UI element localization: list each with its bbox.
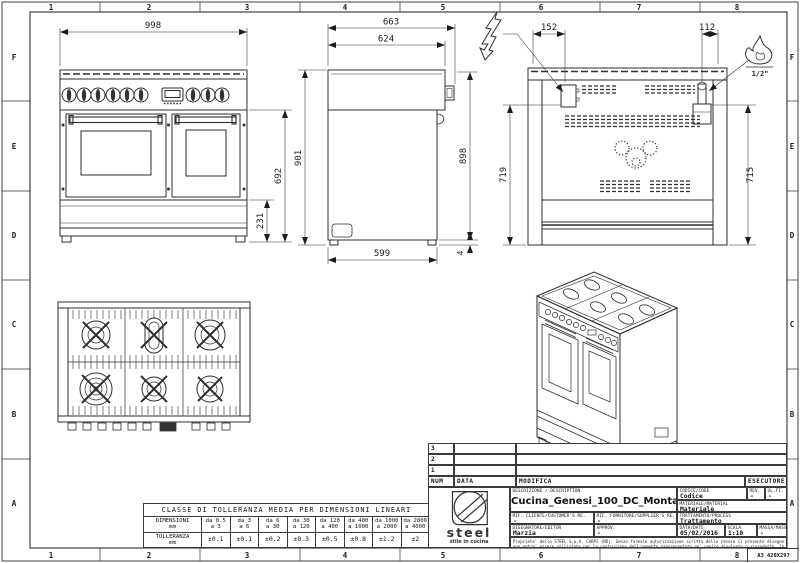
gas-size-label: 1/2"	[752, 70, 769, 78]
col-label: 8	[735, 551, 740, 560]
drawing-sheet: 1 2 3 4 5 6 7 8 1 2 3 4 5 6 7 8 F E D C …	[0, 0, 800, 563]
col-label: 1	[49, 551, 54, 560]
rev-cell: REV. -	[747, 487, 765, 500]
front-view	[60, 28, 292, 242]
dim-side-depth-total: 663	[383, 18, 399, 28]
title-block: 3 2 1 NUM DATA MODIFICA ESECUTORE steel …	[428, 443, 787, 548]
col-label: 1	[49, 3, 54, 12]
tolerance-table: CLASSE DI TOLLERANZA MEDIA PER DIMENSION…	[143, 503, 430, 548]
tolerance-label: TOLLERANZAmm	[144, 533, 202, 548]
dim-rear-left-height: 719	[499, 167, 509, 183]
tolerance-table-title: CLASSE DI TOLLERANZA MEDIA PER DIMENSION…	[144, 504, 429, 517]
row-label: D	[12, 231, 17, 240]
dim-front-body-height: 692	[274, 168, 284, 184]
dim-front-plinth-height: 231	[256, 213, 266, 229]
row-label: F	[12, 53, 17, 62]
dimension-range: da 30a 120	[288, 517, 317, 532]
header-esecutore: ESECUTORE	[745, 476, 787, 487]
revision-desc-cell	[516, 465, 787, 476]
steel-logo-mark	[446, 489, 492, 529]
dimension-range: da 120a 400	[316, 517, 345, 532]
dim-rear-gas-offset: 112	[699, 23, 715, 33]
header-data: DATA	[454, 476, 516, 487]
supplier-ref-cell: RIF. FORNITORE/SUPPLIER'S RE. -	[594, 512, 677, 524]
row-label: F	[790, 53, 795, 62]
dimension-range: da 0.5a 3	[202, 517, 231, 532]
header-modifica: MODIFICA	[516, 476, 745, 487]
col-label: 7	[637, 3, 642, 12]
code-cell: CODICE/CODE Codice	[677, 487, 747, 500]
legal-cell: Proprieta' dello STEEL S.p.A. CARPI (MO)…	[510, 537, 787, 548]
revision-desc-cell	[516, 443, 787, 454]
tolerance-value: ±0.1	[231, 533, 260, 548]
top-view	[58, 302, 250, 431]
revision-row-number: 3	[428, 443, 454, 454]
revision-row-number: 1	[428, 465, 454, 476]
col-label: 8	[735, 3, 740, 12]
scale-cell: SCALA 1:10	[725, 524, 757, 537]
col-label: 6	[539, 3, 544, 12]
revision-desc-cell	[516, 454, 787, 465]
treatment-cell: TRATTAMENTO/PROCESS Trattamento	[677, 512, 787, 524]
dim-side-depth-body: 624	[378, 35, 394, 45]
dimension-range: da 400a 1000	[345, 517, 374, 532]
legal-text: Proprieta' dello STEEL S.p.A. CARPI (MO)…	[511, 538, 786, 548]
row-label: A	[12, 499, 17, 508]
tolerance-value: ±1.2	[373, 533, 402, 548]
tolerance-value: ±0.3	[288, 533, 317, 548]
logo-tagline: stile in cucina	[449, 540, 488, 545]
material-cell: MATERIALE/MATERIAL Materiale	[677, 500, 787, 512]
front-knobs	[62, 88, 229, 102]
col-label: 3	[245, 3, 250, 12]
dim-rear-right-height: 715	[746, 167, 756, 183]
tolerance-value: ±0.8	[345, 533, 374, 548]
mass-cell: MASSA/MASS Kg -	[757, 524, 787, 537]
logo-brand: steel	[447, 527, 492, 540]
dim-rear-electric-offset: 152	[541, 23, 557, 33]
flame-icon	[746, 36, 773, 67]
tolerance-value: ±2	[402, 533, 430, 548]
col-label: 5	[441, 3, 446, 12]
dim-side-depth-base: 599	[374, 249, 390, 259]
row-label: D	[790, 231, 795, 240]
gas-connection	[693, 82, 711, 124]
tolerance-values-row: TOLLERANZAmm ±0.1 ±0.1 ±0.2 ±0.3 ±0.5 ±0…	[144, 532, 429, 548]
dim-side-height-total: 901	[294, 150, 304, 166]
dim-side-foot-gap: 4	[456, 250, 465, 255]
tolerance-value: ±0.2	[259, 533, 288, 548]
customer-ref-cell: RIF. CLIENTE/CUSTOMER'S RE. -	[510, 512, 594, 524]
tolerance-dimensions-row: DIMENSIONImm da 0.5a 3 da 3a 6 da 6a 30 …	[144, 517, 429, 532]
tolerance-value: ±0.5	[316, 533, 345, 548]
dimension-range: da 3a 6	[231, 517, 260, 532]
dimension-range: da 6a 30	[259, 517, 288, 532]
drawing-title: Cucina_Genesi_100_DC_Montaggio	[511, 496, 676, 507]
lightning-icon	[480, 12, 501, 60]
dimension-range: da 1000a 2000	[373, 517, 402, 532]
sheet-format: A3 420X297	[747, 548, 799, 562]
row-label: A	[790, 499, 795, 508]
col-label: 6	[539, 551, 544, 560]
dimensions-label: DIMENSIONImm	[144, 517, 202, 532]
revision-date-cell	[454, 465, 516, 476]
electrical-connection	[561, 85, 579, 107]
col-label: 7	[637, 551, 642, 560]
steel-logo: steel stile in cucina	[428, 487, 510, 548]
vent-dot-cluster	[615, 141, 657, 168]
header-num: NUM	[428, 476, 454, 487]
row-label: C	[790, 320, 795, 329]
col-label: 3	[245, 551, 250, 560]
col-label: 5	[441, 551, 446, 560]
row-label: B	[790, 410, 795, 419]
top-view-knobs	[68, 423, 230, 431]
dimension-range: da 2000a 4000	[402, 517, 430, 532]
side-view	[298, 24, 478, 264]
tolerance-value: ±0.1	[202, 533, 231, 548]
col-label: 2	[147, 3, 152, 12]
description-cell: DESCRIZIONE / DESCRIPTION Cucina_Genesi_…	[510, 487, 677, 512]
row-label: C	[12, 320, 17, 329]
sheet-cell: UL.FI. -	[765, 487, 787, 500]
front-display	[162, 88, 183, 104]
approval-cell: APPROV. -	[594, 524, 677, 537]
col-label: 2	[147, 551, 152, 560]
burners	[80, 318, 225, 405]
row-label: B	[12, 410, 17, 419]
revision-date-cell	[454, 443, 516, 454]
row-label: E	[12, 142, 17, 151]
row-label: E	[790, 142, 795, 151]
rear-view	[503, 30, 756, 245]
revision-row-number: 2	[428, 454, 454, 465]
col-label: 4	[343, 3, 348, 12]
date-cell: DATA/DATE 05/02/2016	[677, 524, 725, 537]
dim-front-width: 998	[145, 21, 161, 31]
dim-side-height-body: 898	[459, 148, 469, 164]
revision-date-cell	[454, 454, 516, 465]
designer-cell: DISEGNATORE/EDITOR Marzia	[510, 524, 594, 537]
door-handles	[69, 116, 236, 125]
col-label: 4	[343, 551, 348, 560]
